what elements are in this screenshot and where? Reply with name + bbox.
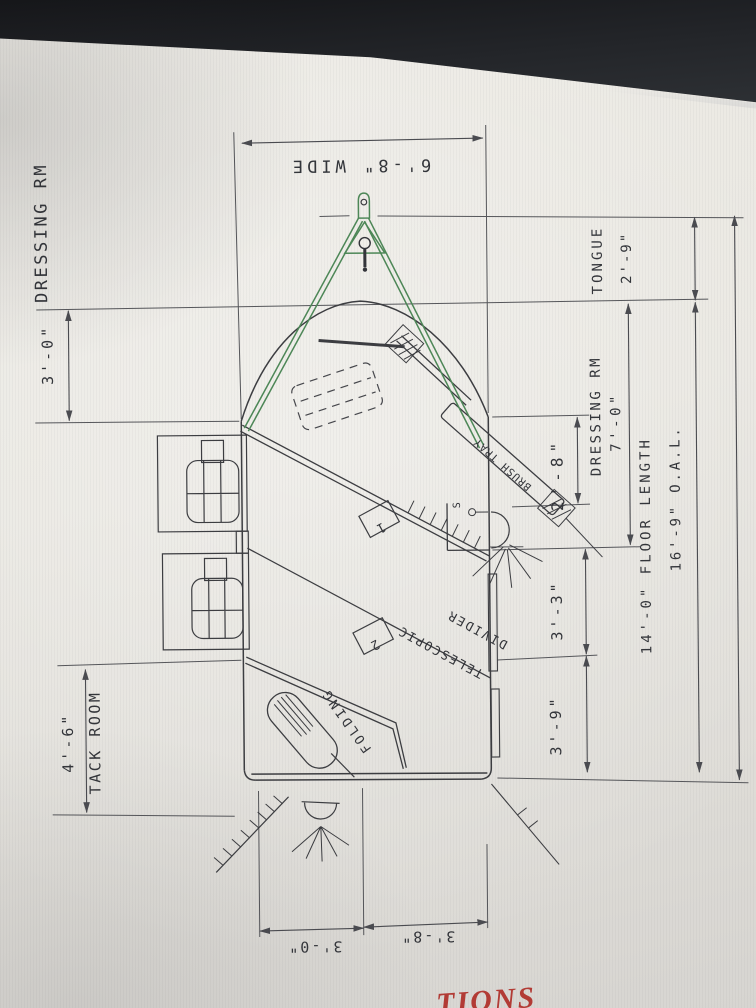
stall-2-number: 2 (368, 636, 382, 653)
front-bar (319, 340, 405, 348)
label-dim-stall-rear: 3'-3" (548, 580, 567, 640)
rear-wall-outer (255, 778, 481, 781)
label-brush-tray: BRUSH TRAY (471, 435, 534, 493)
window-grill-1 (187, 460, 240, 522)
label-dim-bottom-left: 3'-0" (287, 937, 342, 955)
window-grill-2 (192, 578, 244, 638)
dim-line-tongue (695, 217, 696, 300)
label-dim-rear: 3'-9" (547, 695, 566, 755)
light-switch: S (452, 502, 488, 516)
tray-tail-line (566, 518, 602, 557)
label-dressing-rm-right: DRESSING RM (588, 356, 605, 476)
jack-wheel (359, 238, 370, 249)
dim-line-2-8 (577, 417, 578, 503)
dim-line-front-3-0 (68, 311, 69, 421)
hitch-assembly (242, 192, 483, 450)
interior-partitions (240, 423, 491, 770)
dim-line-bottom-3-8 (364, 922, 488, 927)
label-overall-length: 16'-9" O.A.L. (667, 425, 684, 571)
switch-label: S (452, 502, 463, 508)
label-tongue: TONGUE (590, 226, 607, 295)
dome-light-rear (292, 801, 350, 861)
label-dressing-rm-left: DRESSING RM (31, 163, 52, 303)
label-width: 6'-8" WIDE (289, 155, 432, 176)
dim-line-floor-length (695, 302, 699, 772)
side-door-panel-2 (491, 689, 500, 757)
folding-tack-wall (246, 656, 406, 769)
label-dim-bottom-right: 3'-8" (400, 927, 455, 945)
dim-line-3-9 (586, 656, 587, 772)
dim-line-bottom-3-0 (260, 928, 364, 931)
hidden-rack-dashed (290, 361, 384, 431)
label-dim-front: 3'-0" (38, 325, 57, 385)
trailer-floor-plan-drawing: S (0, 0, 756, 1008)
rear-door-swing-left (214, 796, 290, 873)
label-dressing-rm-dim: 7'-0" (608, 392, 625, 452)
stall-wall-hatch (408, 500, 480, 549)
dim-line-dressing-7-0 (628, 304, 630, 545)
stall-windows (157, 435, 249, 650)
window-latch-2 (204, 558, 226, 580)
window-box-2 (162, 553, 249, 650)
label-tack-dim: 4'-6" (59, 713, 78, 773)
window-box-1 (157, 435, 247, 532)
dim-line-width (242, 138, 483, 143)
dim-line-3-3 (585, 549, 586, 654)
label-tack-room: TACK ROOM (86, 691, 105, 795)
coupler (358, 193, 369, 218)
rear-door-swing-right (491, 783, 559, 865)
label-divider: DIVIDER (444, 608, 510, 653)
coupler-pin (361, 199, 367, 205)
window-latch-1 (201, 440, 223, 462)
label-dim-brush-wall: 2'-8" (547, 438, 567, 511)
label-folding: FOLDING (319, 685, 375, 755)
label-tongue-dim: 2'-9" (619, 232, 635, 284)
dim-line-oal (734, 216, 739, 780)
monitor-photo: S (0, 0, 756, 1008)
stall-1-number: 1 (374, 519, 388, 536)
jack-foot (363, 267, 367, 271)
label-floor-length: 14'-0" FLOOR LENGTH (637, 437, 655, 654)
rear-left-corner (244, 770, 255, 780)
nose-arc (240, 300, 488, 421)
rear-wall-inner (251, 772, 487, 775)
stall-wall-1 (242, 423, 489, 558)
